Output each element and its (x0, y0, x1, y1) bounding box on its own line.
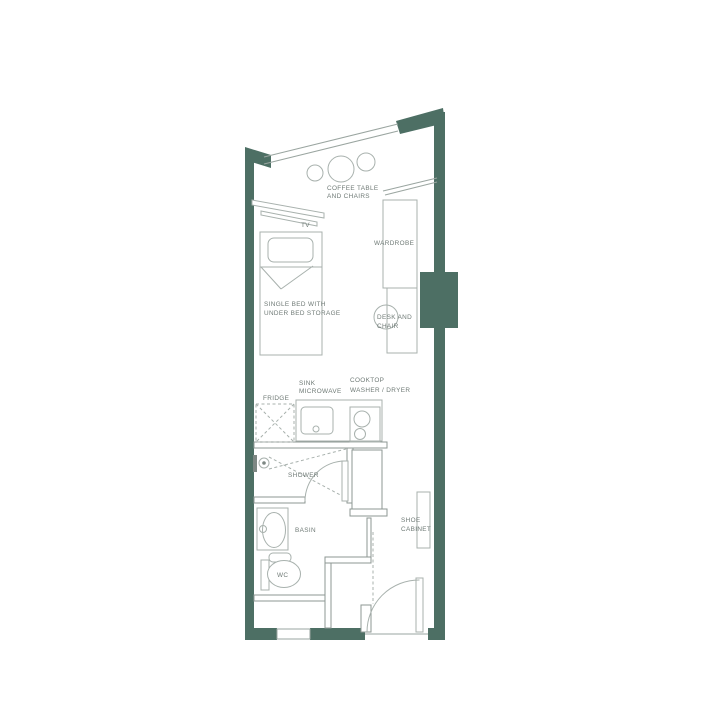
label-desk-line1: DESK AND (377, 314, 412, 321)
label-basin: BASIN (295, 527, 316, 534)
label-cooktop-line2: WASHER / DRYER (350, 387, 410, 394)
wall-pilaster-block (420, 272, 458, 328)
wall-bottom-segment-middle (310, 628, 365, 640)
label-shoe-cabinet-line1: SHOE (401, 517, 421, 524)
label-sink-line2: MICROWAVE (299, 388, 342, 395)
window-bottom (277, 629, 310, 639)
partition-wc-bottom (254, 595, 325, 601)
shower-head-dot (262, 461, 266, 465)
wall-right (434, 112, 445, 640)
floor-plan-page: COFFEE TABLE AND CHAIRS TV WARDROBE SING… (0, 0, 720, 720)
label-bed-line2: UNDER BED STORAGE (264, 310, 341, 317)
sink-outline (301, 407, 333, 434)
window-top-inner-line (264, 131, 398, 164)
wall-bottom-segment-right (428, 628, 445, 640)
bathroom (253, 449, 348, 590)
label-shoe-cabinet-line2: CABINET (401, 526, 431, 533)
interior-partitions (254, 442, 387, 632)
label-coffee-table-line1: COFFEE TABLE (327, 185, 379, 192)
partition-entry-left (325, 563, 331, 628)
label-bed-line1: SINGLE BED WITH (264, 301, 326, 308)
burner-small (355, 429, 366, 440)
label-coffee-table-line2: AND CHAIRS (327, 193, 370, 200)
bathroom-door-swing (305, 461, 345, 501)
bed-fold-right (281, 266, 313, 289)
floor-plan-svg: COFFEE TABLE AND CHAIRS TV WARDROBE SING… (0, 0, 720, 720)
bed-pillow (268, 238, 313, 262)
shower-spray-line-2 (269, 449, 346, 469)
window-top-outer-line (264, 124, 398, 157)
entry-door-swing (367, 580, 420, 632)
burner-large (354, 411, 370, 427)
wall-bottom-segment-left (245, 628, 277, 640)
wall-left (245, 158, 254, 640)
partition-entry-connector (367, 518, 371, 558)
bed-fold-left (261, 267, 281, 289)
coffee-chair-right (357, 153, 375, 171)
label-sink-line1: SINK (299, 380, 316, 387)
entry-door-leaf (416, 578, 423, 632)
label-wc: WC (277, 572, 288, 579)
basin-outline (257, 508, 288, 550)
label-tv: TV (301, 222, 310, 229)
duct-outline (352, 450, 382, 509)
label-desk-line2: CHAIR (377, 323, 399, 330)
partition-entry-top (325, 557, 371, 563)
coffee-chair-left (307, 165, 323, 181)
partition-bath-bottom (254, 497, 305, 503)
partition-kitchen-bath (254, 442, 387, 448)
label-shower: SHOWER (288, 472, 319, 479)
label-fridge: FRIDGE (263, 395, 289, 402)
counter-outline (296, 400, 382, 441)
coffee-table (328, 156, 354, 182)
duct-bottom-cap (350, 509, 387, 516)
kitchen (256, 400, 382, 442)
bathroom-door-leaf (342, 461, 348, 501)
sink-drain (313, 426, 319, 432)
label-wardrobe: WARDROBE (374, 240, 414, 247)
entry-door-jamb (361, 605, 371, 632)
shower-wall-bar (253, 455, 257, 472)
label-cooktop-line1: COOKTOP (350, 377, 384, 384)
